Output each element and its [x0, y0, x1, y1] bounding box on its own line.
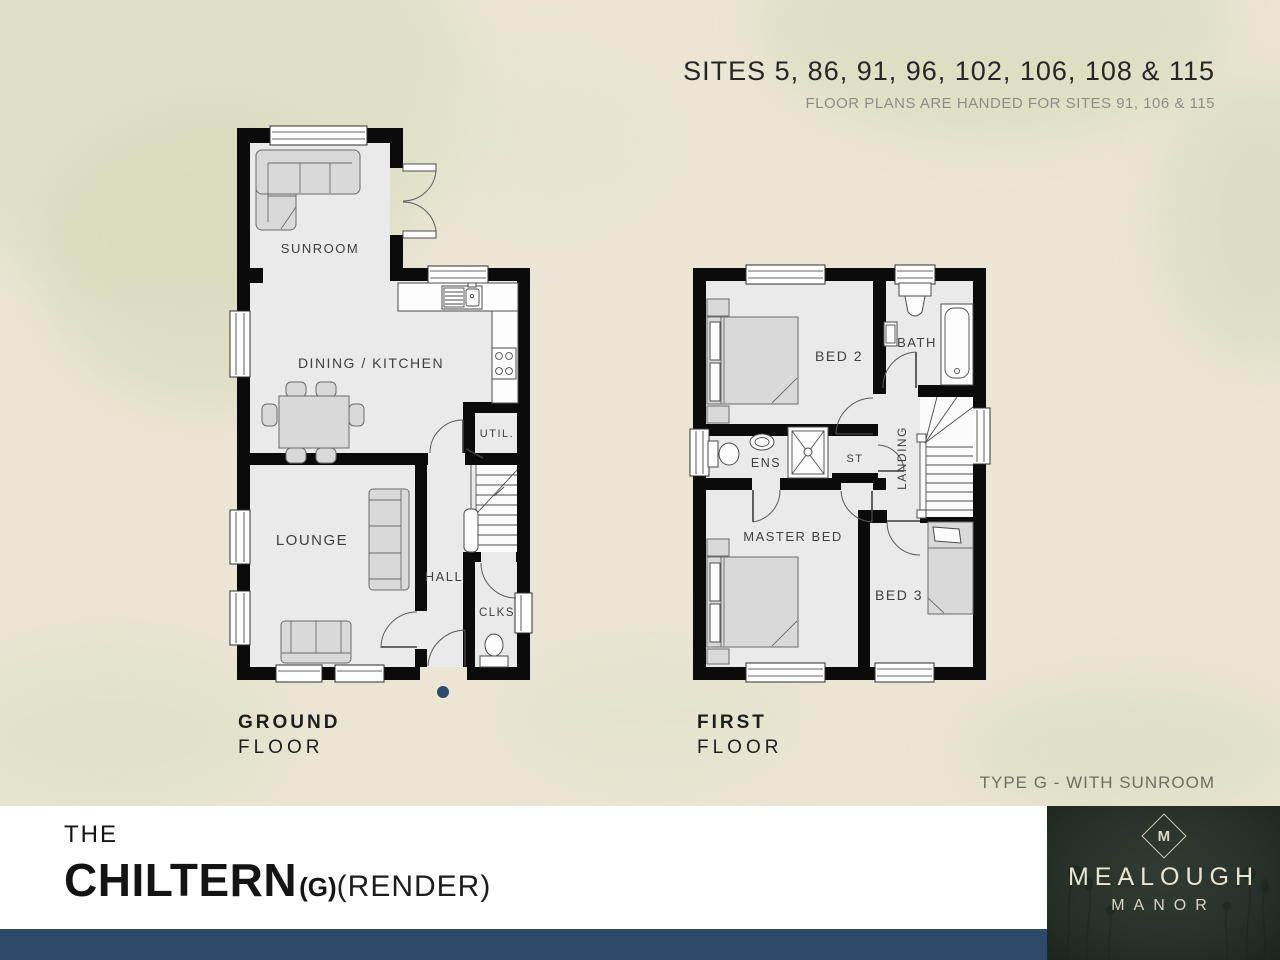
master-bed-furniture	[707, 539, 798, 664]
label-lounge: LOUNGE	[276, 532, 348, 549]
label-hall: HALL	[425, 569, 464, 584]
sites-note: FLOOR PLANS ARE HANDED FOR SITES 91, 106…	[683, 95, 1215, 112]
entrance-dot	[437, 686, 449, 698]
sites-title: SITES 5, 86, 91, 96, 102, 106, 108 & 115	[683, 56, 1215, 87]
house-title-box: THE CHILTERN (G) (RENDER)	[0, 806, 1047, 929]
house-title-prefix: THE	[64, 821, 491, 849]
logo-subtitle: MANOR	[1047, 897, 1280, 915]
first-caption-light: FLOOR	[697, 737, 782, 759]
understairs-cupboard	[464, 509, 478, 552]
label-sunroom: SUNROOM	[281, 241, 359, 256]
first-floor-plan: BED 2 BATH ENS ST LANDING MASTER BED BED…	[680, 250, 1000, 695]
label-master-bed: MASTER BED	[743, 529, 843, 544]
ground-caption-bold: GROUND	[238, 712, 340, 734]
logo-diamond-icon: M	[1141, 813, 1186, 858]
watercolor-leaf-wash	[1160, 80, 1280, 360]
house-type-note: TYPE G - WITH SUNROOM	[980, 773, 1215, 793]
first-floor-caption: FIRST FLOOR	[697, 712, 782, 759]
ground-caption-light: FLOOR	[238, 737, 340, 759]
label-ens: ENS	[751, 456, 781, 470]
label-dining-kitchen: DINING / KITCHEN	[298, 355, 444, 371]
house-variant: (G)	[299, 872, 337, 903]
first-stairs	[917, 397, 973, 518]
logo-monogram: M	[1157, 828, 1170, 845]
label-landing: LANDING	[895, 426, 909, 490]
label-st: ST	[846, 453, 863, 465]
ground-floor-caption: GROUND FLOOR	[238, 712, 340, 759]
house-name: CHILTERN	[64, 853, 297, 907]
label-bed3: BED 3	[875, 587, 923, 603]
bed3-furniture	[928, 522, 973, 614]
label-util: UTIL.	[480, 428, 514, 440]
label-clks: CLKS	[479, 607, 515, 619]
label-bed2: BED 2	[815, 348, 863, 364]
kitchen-hob	[492, 348, 516, 379]
logo-name: MEALOUGH	[1047, 863, 1280, 892]
first-caption-bold: FIRST	[697, 712, 782, 734]
sites-header: SITES 5, 86, 91, 96, 102, 106, 108 & 115…	[683, 56, 1215, 112]
bed2-furniture	[707, 299, 798, 423]
house-finish: (RENDER)	[337, 870, 492, 904]
ground-floor-plan: SUNROOM DINING / KITCHEN UTIL. LOUNGE HA…	[225, 118, 545, 703]
label-bath: BATH	[897, 335, 937, 350]
french-doors	[403, 164, 436, 238]
watercolor-leaf-wash	[960, 680, 1280, 820]
development-logo: M MEALOUGH MANOR	[1047, 806, 1280, 960]
